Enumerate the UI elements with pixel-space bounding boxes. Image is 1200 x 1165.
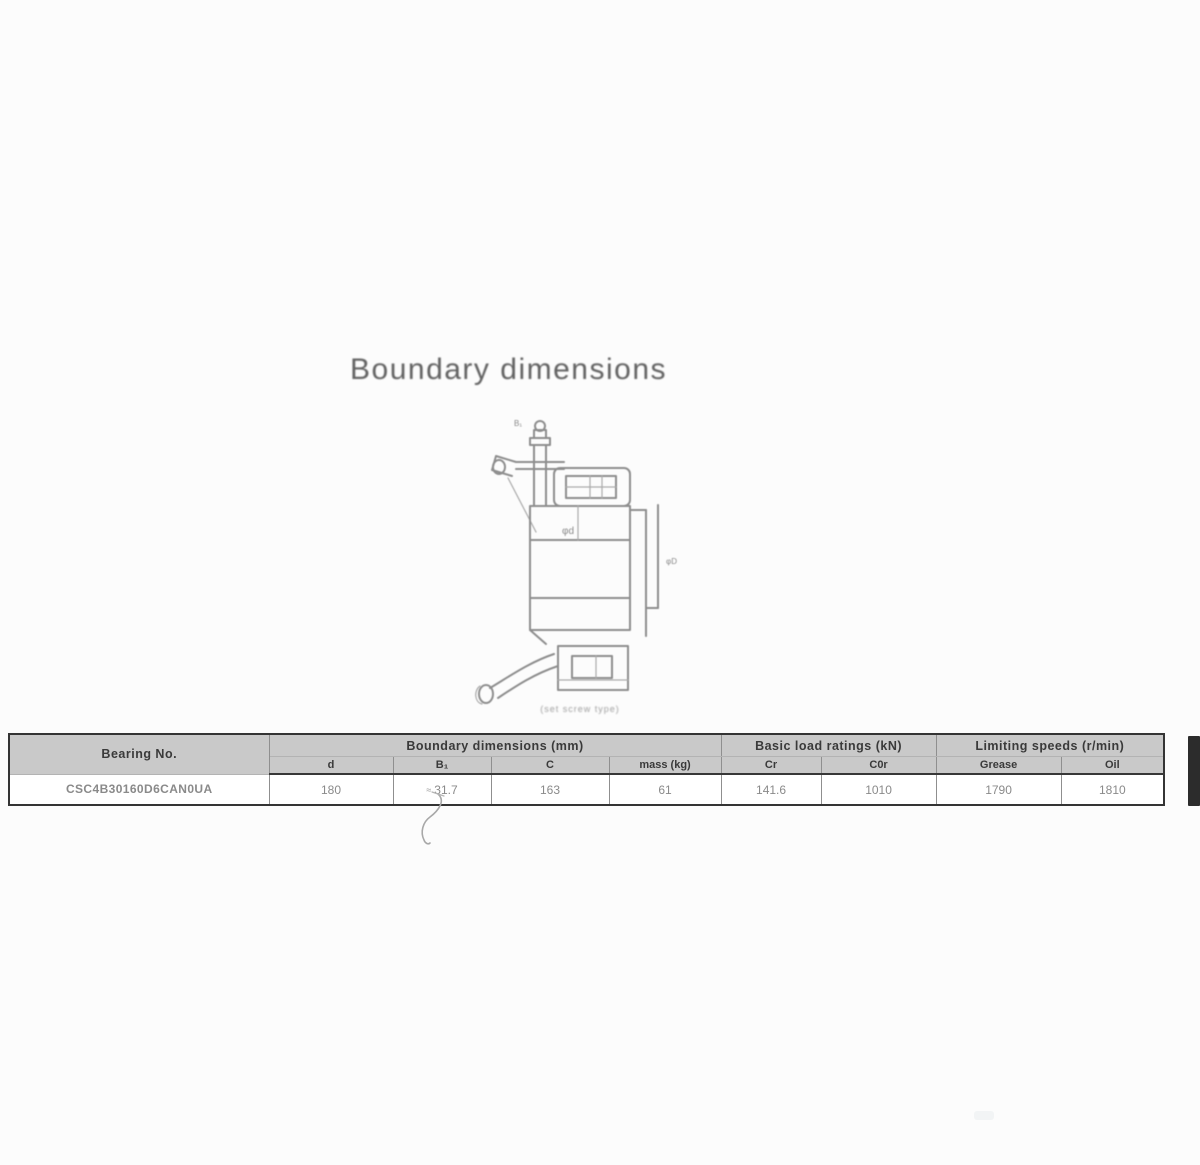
- col-group-bearing-no: Bearing No.: [9, 734, 269, 774]
- cell-c0r: 1010: [821, 774, 936, 805]
- col-header-d: d: [269, 757, 393, 775]
- outer-ring: φD: [630, 505, 677, 636]
- col-group-limiting-speeds: Limiting speeds (r/min): [936, 734, 1164, 757]
- col-header-cr: Cr: [721, 757, 821, 775]
- figure-label-bore: φd: [562, 526, 574, 537]
- lube-pipe: [476, 654, 558, 704]
- cell-c: 163: [491, 774, 609, 805]
- col-group-boundary-dimensions: Boundary dimensions (mm): [269, 734, 721, 757]
- cell-d: 180: [269, 774, 393, 805]
- adjacent-table-fragment: [1188, 736, 1200, 806]
- pen-squiggle-annotation: [404, 790, 464, 848]
- cell-oil-speed: 1810: [1061, 774, 1164, 805]
- grease-fitting: [516, 421, 564, 505]
- table-row: CSC4B30160D6CAN0UA 180 ≈31.7 163 61 141.…: [9, 774, 1164, 805]
- figure-label-outside-diameter: φD: [666, 557, 677, 566]
- col-header-c0r: C0r: [821, 757, 936, 775]
- bearing-spec-table: Bearing No. Boundary dimensions (mm) Bas…: [8, 733, 1165, 806]
- col-group-basic-load-ratings: Basic load ratings (kN): [721, 734, 936, 757]
- col-header-mass: mass (kg): [609, 757, 721, 775]
- cell-bearing-no: CSC4B30160D6CAN0UA: [9, 774, 269, 805]
- cell-grease-speed: 1790: [936, 774, 1061, 805]
- figure-caption: (set screw type): [455, 704, 705, 714]
- upper-bearing-block: [554, 468, 630, 506]
- bearing-cross-section-drawing: φd φD B₁: [450, 410, 710, 710]
- col-header-grease: Grease: [936, 757, 1061, 775]
- col-header-b1: B₁: [393, 757, 491, 775]
- cell-mass: 61: [609, 774, 721, 805]
- cell-cr: 141.6: [721, 774, 821, 805]
- bearing-drawing-svg: φd φD B₁: [450, 410, 710, 710]
- lower-bearing-block: [530, 630, 628, 690]
- page-title: Boundary dimensions: [350, 353, 710, 387]
- col-header-c: C: [491, 757, 609, 775]
- figure-label-top: B₁: [514, 419, 522, 428]
- scan-smudge: [974, 1111, 994, 1120]
- col-header-oil: Oil: [1061, 757, 1164, 775]
- table-header: Bearing No. Boundary dimensions (mm) Bas…: [9, 734, 1164, 774]
- bearing-body: φd: [530, 506, 630, 630]
